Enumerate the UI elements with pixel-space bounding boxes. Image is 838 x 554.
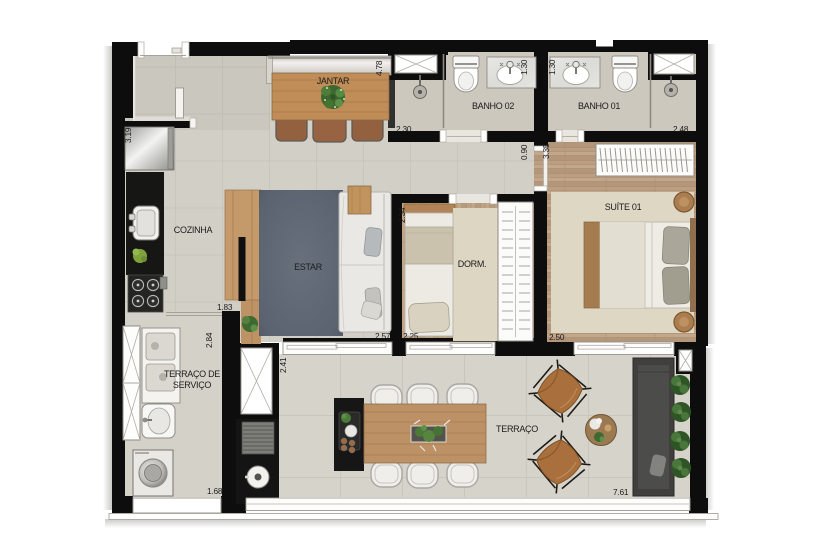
svg-text:7.61: 7.61 bbox=[613, 487, 629, 497]
svg-text:2.57: 2.57 bbox=[375, 331, 391, 341]
svg-text:2.84: 2.84 bbox=[204, 332, 214, 348]
svg-text:2.34: 2.34 bbox=[397, 207, 407, 223]
svg-text:JANTAR: JANTAR bbox=[317, 76, 350, 86]
svg-text:4.78: 4.78 bbox=[374, 60, 384, 76]
svg-text:2.30: 2.30 bbox=[396, 124, 412, 134]
svg-text:0.90: 0.90 bbox=[519, 144, 529, 160]
svg-text:COZINHA: COZINHA bbox=[174, 225, 213, 235]
svg-text:DORM.: DORM. bbox=[458, 259, 487, 269]
svg-text:1.68: 1.68 bbox=[207, 486, 223, 496]
svg-text:2.48: 2.48 bbox=[673, 124, 689, 134]
svg-text:BANHO 01: BANHO 01 bbox=[578, 101, 620, 111]
svg-text:1.30: 1.30 bbox=[519, 59, 529, 75]
svg-text:2.25: 2.25 bbox=[403, 331, 419, 341]
svg-text:2.50: 2.50 bbox=[549, 332, 565, 342]
svg-text:3.35: 3.35 bbox=[541, 143, 551, 159]
svg-text:ESTAR: ESTAR bbox=[294, 262, 323, 272]
svg-text:3.19: 3.19 bbox=[123, 127, 133, 143]
svg-text:SUÍTE 01: SUÍTE 01 bbox=[605, 202, 642, 212]
svg-text:TERRAÇO: TERRAÇO bbox=[496, 424, 538, 434]
svg-text:1.83: 1.83 bbox=[217, 302, 233, 312]
svg-text:2.41: 2.41 bbox=[278, 357, 288, 373]
svg-text:SERVIÇO: SERVIÇO bbox=[173, 380, 212, 390]
svg-text:BANHO 02: BANHO 02 bbox=[472, 101, 514, 111]
svg-text:TERRAÇO DE: TERRAÇO DE bbox=[164, 369, 220, 379]
svg-text:1.30: 1.30 bbox=[547, 59, 557, 75]
